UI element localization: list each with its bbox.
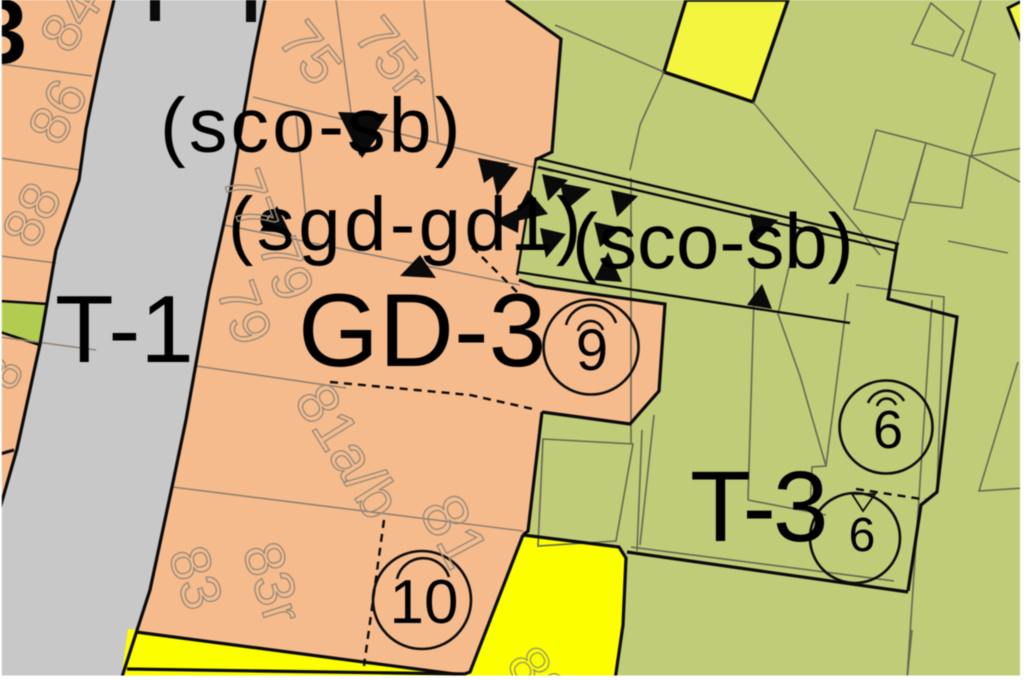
svg-text:(sco-sb): (sco-sb) <box>572 197 854 285</box>
svg-text:(sco-sb): (sco-sb) <box>160 83 464 169</box>
svg-text:GD-3: GD-3 <box>298 273 546 389</box>
svg-text:3: 3 <box>0 0 27 83</box>
svg-text:6: 6 <box>873 400 903 460</box>
svg-text:T-1: T-1 <box>55 276 194 383</box>
svg-text:9: 9 <box>576 318 608 383</box>
svg-text:10: 10 <box>390 568 459 637</box>
svg-text:6: 6 <box>849 509 876 562</box>
svg-text:T-3: T-3 <box>690 451 825 563</box>
